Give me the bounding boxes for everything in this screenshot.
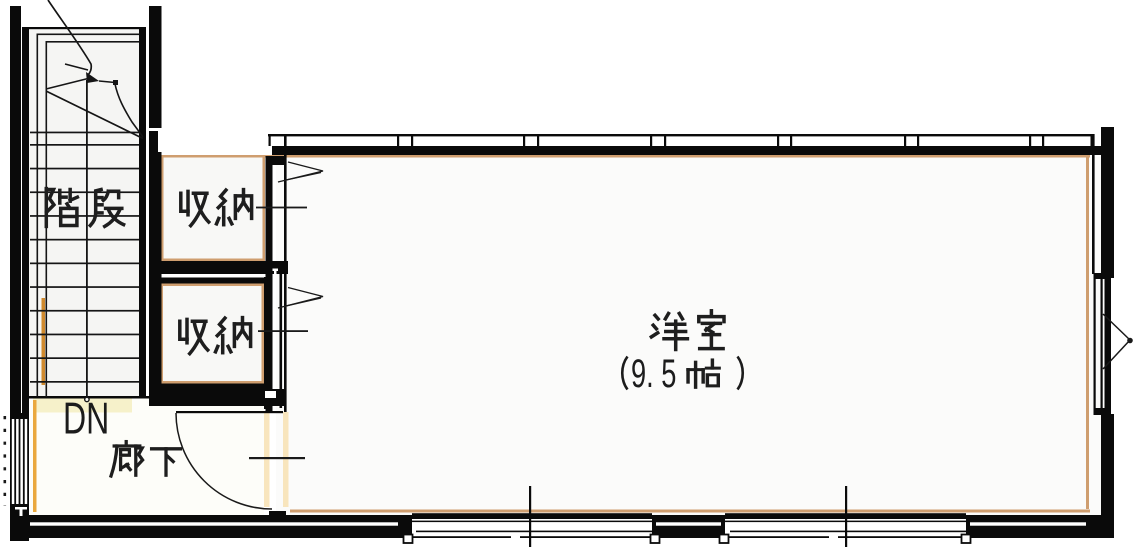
svg-text:9. 5: 9. 5 [631,352,676,396]
svg-text:DN: DN [63,394,109,443]
